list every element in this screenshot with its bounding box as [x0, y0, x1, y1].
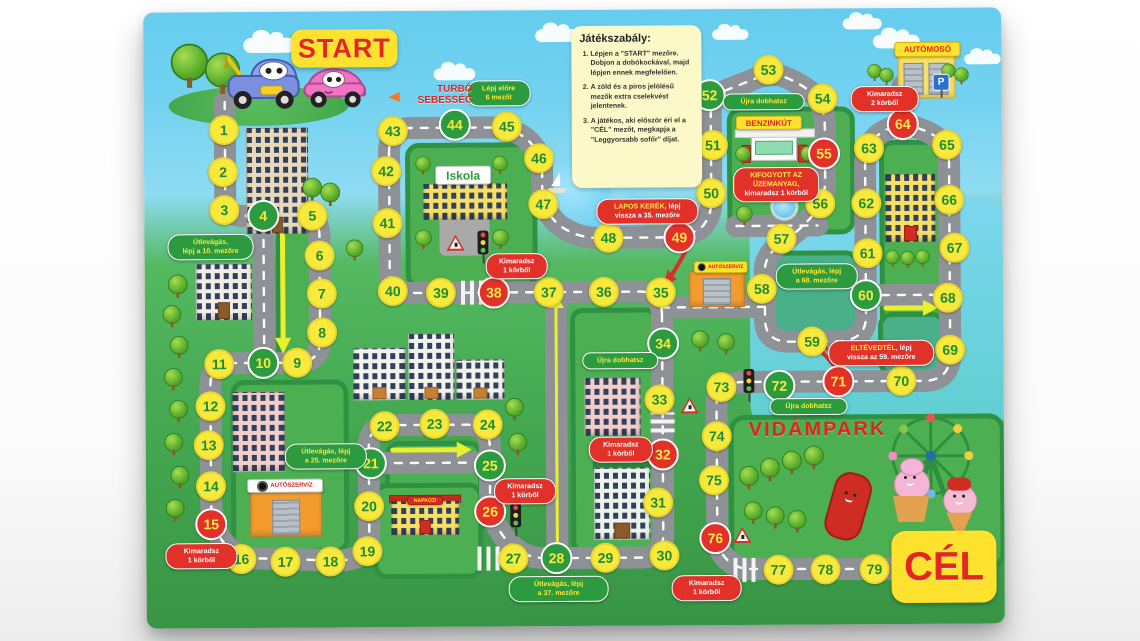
tree [885, 250, 899, 264]
space-76: 76 [699, 522, 731, 554]
space-40: 40 [378, 276, 408, 306]
tire-icon [257, 480, 268, 491]
space-17: 17 [270, 547, 300, 577]
crosswalk-33 [651, 412, 675, 432]
rules-title: Játékszabály: [579, 32, 693, 45]
tree [320, 183, 340, 203]
space-4: 4 [247, 200, 279, 232]
pedestrian-sign-76 [733, 527, 751, 543]
space-36: 36 [589, 277, 619, 307]
tree [170, 336, 189, 355]
bubble-6: Útlevágás,lépj a 10. mezőre [167, 234, 253, 261]
apartment-row-1 [353, 348, 405, 400]
space-50: 50 [696, 178, 726, 208]
traffic-light-73 [743, 369, 754, 393]
tree [766, 506, 785, 525]
tree [164, 368, 183, 387]
tree [492, 156, 507, 171]
space-64: 64 [887, 108, 919, 140]
pedestrian-sign-33 [680, 397, 698, 413]
space-1: 1 [209, 115, 239, 145]
tree [166, 499, 185, 518]
start-sign: START [291, 29, 397, 68]
gas-station-sign: BENZINKÚT [736, 116, 802, 130]
space-46: 46 [524, 143, 554, 173]
space-11: 11 [204, 349, 234, 379]
tree [900, 251, 914, 265]
space-7: 7 [307, 278, 337, 308]
space-31: 31 [643, 487, 673, 517]
car-wash-sign: AUTÓMOSÓ [894, 42, 960, 57]
amusement-park-label: VIDÁMPARK [749, 418, 887, 442]
space-22: 22 [370, 411, 400, 441]
cone-face [951, 495, 967, 505]
bubble-9: ELTÉVEDTÉL, lépjvissza az 59. mezőre [828, 340, 934, 367]
bubble-4: KIFOGYOTT AZÜZEMANYAG,kimaradsz 1 körből [733, 167, 819, 203]
tree [164, 433, 183, 452]
space-8: 8 [307, 317, 337, 347]
tree [954, 67, 968, 81]
school-building [423, 183, 507, 220]
tree [735, 146, 750, 161]
space-35: 35 [646, 277, 676, 307]
tree [915, 250, 929, 264]
goal-sign: CÉL [891, 530, 996, 603]
space-61: 61 [853, 238, 883, 268]
space-30: 30 [649, 540, 679, 570]
space-42: 42 [371, 156, 401, 186]
tree [760, 458, 780, 478]
tree [415, 230, 432, 247]
soft-serve-tip [900, 458, 924, 476]
apartment-row-2 [408, 334, 454, 400]
sailboat-sail [551, 172, 560, 186]
space-24: 24 [473, 409, 503, 439]
bubble-11: Újra dobhatsz [769, 398, 847, 416]
space-78: 78 [810, 554, 840, 584]
tire-icon [698, 263, 706, 271]
tree [744, 502, 763, 521]
space-49: 49 [663, 221, 695, 253]
pink-building-mid [584, 378, 640, 436]
building-left [196, 264, 252, 320]
rules-list: Lépjen a "START" mezőre. Dobjon a dobóko… [579, 49, 694, 145]
daycare-building [391, 501, 459, 535]
space-10: 10 [247, 347, 279, 379]
garage-door-left [272, 500, 300, 535]
rule-item: Lépjen a "START" mezőre. Dobjon a dobóko… [590, 49, 693, 78]
tree [782, 451, 802, 471]
space-79: 79 [859, 554, 889, 584]
soft-serve-face [902, 476, 918, 486]
space-67: 67 [939, 233, 969, 263]
bubble-15: Kimaradsz1 körből [494, 478, 556, 505]
bubble-10: Újra dobhatsz [582, 352, 658, 370]
space-55: 55 [808, 137, 840, 169]
car-service-label: AUTÓSZERVIZ [270, 483, 312, 489]
space-19: 19 [352, 536, 382, 566]
space-14: 14 [196, 471, 226, 501]
space-62: 62 [851, 188, 881, 218]
bubble-2: Újra dobhatsz [723, 93, 805, 111]
school-sign: Iskola [435, 166, 491, 185]
garage-door-mid [703, 278, 731, 305]
turbo-speed-label: TURBÓ SEBESSÉG [397, 84, 473, 106]
bubble-1: Lépj előre6 mezőt [467, 80, 531, 107]
space-20: 20 [354, 491, 384, 521]
car-service-sign-left: AUTÓSZERVIZ [247, 479, 323, 493]
space-2: 2 [208, 157, 238, 187]
car-service-sign-mid: AUTÓSZERVIZ [694, 261, 748, 273]
tree [346, 239, 364, 257]
space-37: 37 [534, 277, 564, 307]
space-5: 5 [297, 201, 327, 231]
tree [415, 156, 430, 171]
space-15: 15 [195, 508, 227, 540]
car-service-label: AUTÓSZERVIZ [708, 264, 743, 270]
space-9: 9 [282, 348, 312, 378]
space-71: 71 [822, 365, 854, 397]
rule-item: A zöld és a piros jelölésű mezők extra c… [591, 83, 694, 112]
bubble-17: Kimaradsz1 körből [672, 575, 742, 602]
board-artwork: Iskola AUTÓSZERVIZ NAPKÖZI AUTÓMOSÓ P BE… [143, 7, 1005, 628]
space-51: 51 [698, 130, 728, 160]
bubble-14: Kimaradsz1 körből [165, 543, 237, 570]
rules-box: Játékszabály: Lépjen a "START" mezőre. D… [571, 25, 702, 188]
pink-building-left [232, 392, 284, 472]
space-43: 43 [378, 116, 408, 146]
cone-cherry-top [947, 478, 971, 491]
space-74: 74 [702, 421, 732, 451]
space-75: 75 [699, 465, 729, 495]
space-12: 12 [195, 391, 225, 421]
space-29: 29 [590, 543, 620, 573]
tree [879, 68, 893, 82]
space-66: 66 [934, 185, 964, 215]
space-45: 45 [492, 111, 522, 141]
space-70: 70 [886, 366, 916, 396]
pedestrian-sign-school [446, 235, 464, 251]
tree [302, 178, 322, 198]
space-69: 69 [935, 335, 965, 365]
space-65: 65 [932, 130, 962, 160]
space-23: 23 [420, 409, 450, 439]
tree [168, 274, 188, 294]
tree [171, 466, 190, 485]
space-72: 72 [763, 370, 795, 402]
tree [508, 433, 527, 452]
game-board: Iskola AUTÓSZERVIZ NAPKÖZI AUTÓMOSÓ P BE… [143, 7, 1005, 628]
space-63: 63 [854, 133, 884, 163]
space-44: 44 [439, 109, 471, 141]
space-39: 39 [426, 278, 456, 308]
space-25: 25 [474, 449, 506, 481]
space-13: 13 [194, 430, 224, 460]
space-58: 58 [747, 274, 777, 304]
traffic-light-school [477, 231, 488, 255]
daycare-sign: NAPKÖZI [407, 496, 443, 505]
space-77: 77 [763, 555, 793, 585]
white-building-mid [594, 468, 650, 540]
traffic-light-26 [510, 503, 521, 527]
bubble-16: Útlevágás, lépja 37. mezőre [509, 576, 609, 603]
space-27: 27 [498, 543, 528, 573]
space-53: 53 [753, 55, 783, 85]
tree [492, 229, 509, 246]
tree [736, 206, 753, 223]
tree [717, 333, 735, 351]
space-54: 54 [808, 83, 838, 113]
tree [505, 398, 524, 417]
space-59: 59 [797, 326, 827, 356]
tree [163, 305, 182, 324]
tree [171, 44, 209, 82]
apartment-row-3 [456, 359, 504, 399]
space-48: 48 [593, 223, 623, 253]
space-73: 73 [706, 372, 736, 402]
space-33: 33 [644, 384, 674, 414]
space-38: 38 [478, 276, 510, 308]
space-18: 18 [315, 546, 345, 576]
space-57: 57 [766, 224, 796, 254]
tree [739, 466, 759, 486]
tree [788, 510, 807, 529]
space-28: 28 [540, 542, 572, 574]
parking-sign: P [933, 74, 950, 91]
yellow-building-right [885, 174, 935, 242]
bubble-13: Útlevágás, lépja 25. mezőre [285, 443, 367, 470]
tree [169, 400, 188, 419]
bubble-7: Kimaradsz1 körből [486, 253, 548, 280]
tree [691, 330, 709, 348]
bubble-3: Kimaradsz2 körből [851, 86, 919, 113]
space-3: 3 [209, 195, 239, 225]
space-6: 6 [305, 240, 335, 270]
space-68: 68 [933, 283, 963, 313]
bubble-5: LAPOS KERÉK, lépjvissza a 35. mezőre [596, 198, 698, 225]
bubble-12: Kimaradsz1 körből [589, 436, 653, 463]
tree [804, 446, 824, 466]
bubble-8: Útlevágás, lépja 68. mezőre [776, 263, 858, 290]
space-41: 41 [372, 208, 402, 238]
rule-item: A játékos, aki először éri el a "CÉL" me… [591, 116, 694, 145]
soft-serve-cup [893, 496, 929, 522]
space-47: 47 [528, 189, 558, 219]
gas-station-window [755, 141, 793, 155]
